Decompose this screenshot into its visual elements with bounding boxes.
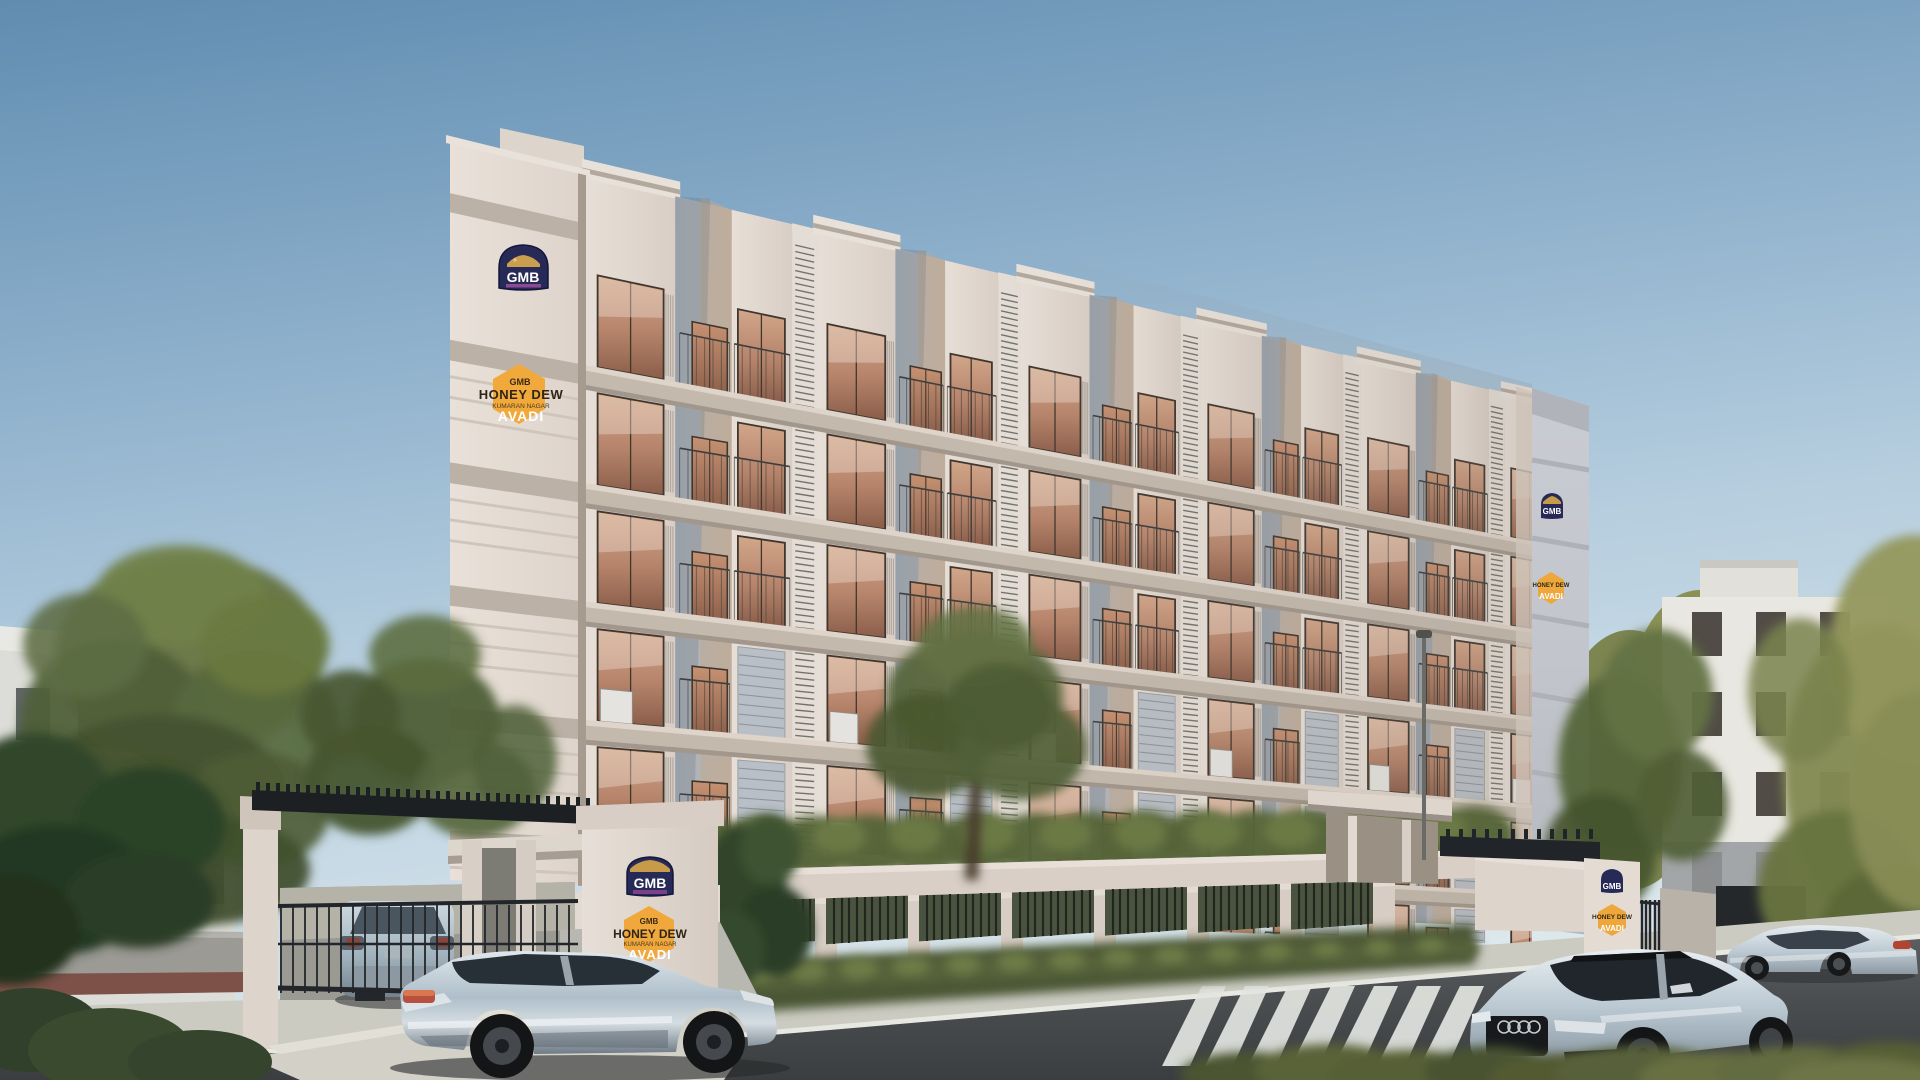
svg-text:AVADI: AVADI (1539, 592, 1563, 601)
svg-text:GMB: GMB (507, 269, 540, 285)
svg-text:HONEY DEW: HONEY DEW (613, 927, 687, 941)
svg-text:GMB: GMB (640, 917, 659, 926)
svg-text:GMB: GMB (1603, 882, 1622, 891)
svg-text:GMB: GMB (634, 875, 667, 891)
svg-text:HONEY DEW: HONEY DEW (1592, 914, 1633, 921)
svg-text:GMB: GMB (1543, 507, 1562, 516)
svg-text:AVADI: AVADI (1600, 924, 1624, 933)
svg-text:HONEY DEW: HONEY DEW (479, 387, 564, 402)
svg-text:HONEY DEW: HONEY DEW (1533, 583, 1570, 589)
svg-text:GMB: GMB (510, 377, 531, 387)
svg-text:AVADI: AVADI (498, 408, 544, 424)
